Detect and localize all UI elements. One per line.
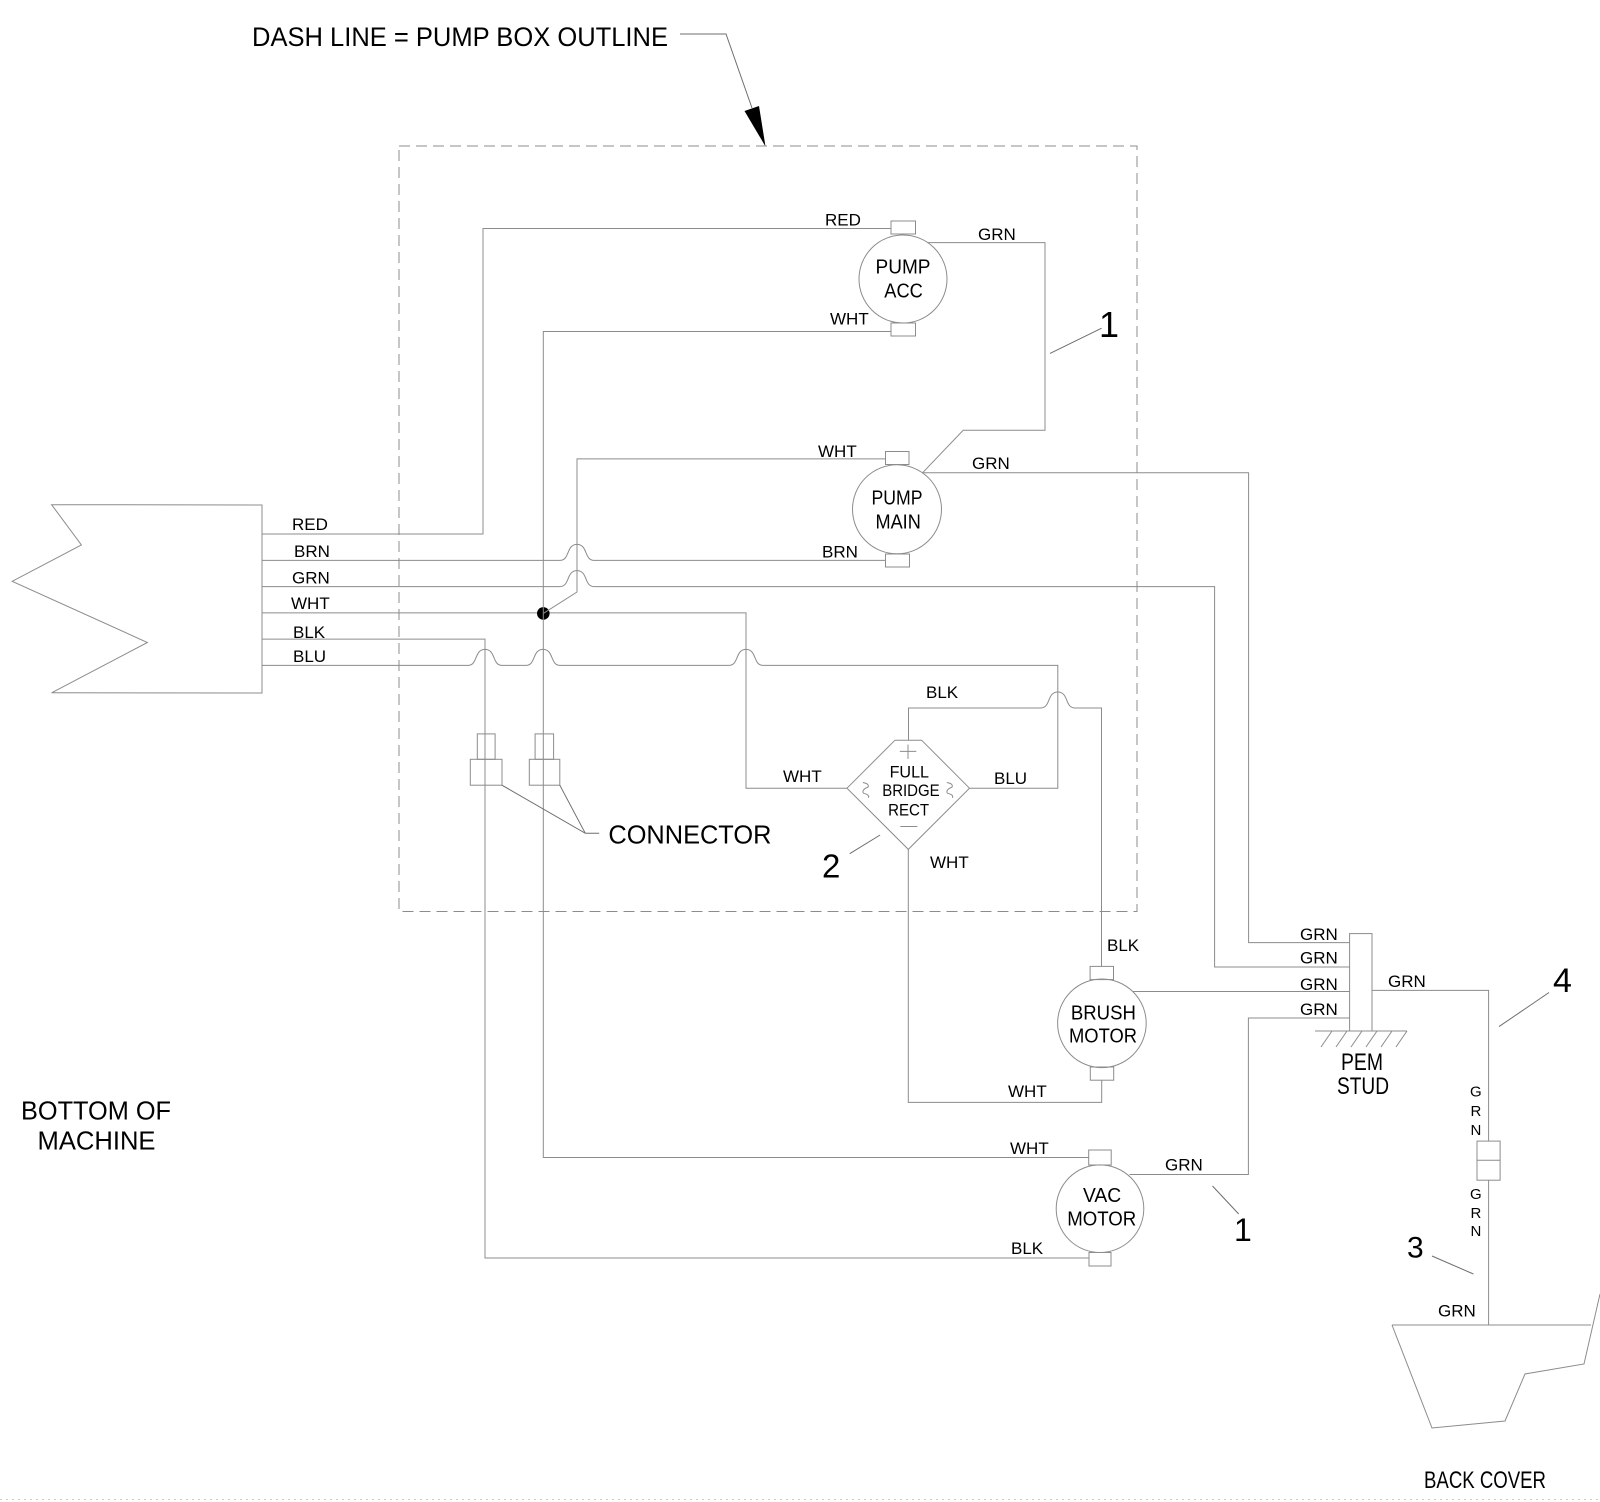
svg-text:BOTTOM OF: BOTTOM OF: [21, 1095, 171, 1125]
svg-text:WHT: WHT: [783, 767, 822, 786]
svg-text:MOTOR: MOTOR: [1069, 1026, 1137, 1048]
svg-text:BRUSH: BRUSH: [1071, 1003, 1136, 1025]
svg-text:DASH LINE = PUMP BOX OUTLINE: DASH LINE = PUMP BOX OUTLINE: [252, 22, 668, 52]
svg-text:GRN: GRN: [978, 225, 1016, 244]
svg-text:WHT: WHT: [830, 310, 869, 329]
svg-text:PUMP: PUMP: [876, 257, 931, 279]
svg-text:G: G: [1470, 1186, 1482, 1203]
svg-text:BLK: BLK: [1011, 1239, 1044, 1258]
svg-text:GRN: GRN: [1300, 1000, 1338, 1019]
svg-text:GRN: GRN: [1165, 1156, 1203, 1175]
svg-text:MOTOR: MOTOR: [1067, 1208, 1136, 1230]
svg-text:1: 1: [1099, 304, 1119, 345]
svg-text:BRN: BRN: [294, 542, 330, 561]
svg-text:BLK: BLK: [926, 683, 959, 702]
svg-text:GRN: GRN: [292, 569, 330, 588]
svg-text:PEM: PEM: [1341, 1049, 1383, 1076]
svg-text:GRN: GRN: [1388, 972, 1426, 991]
svg-text:MACHINE: MACHINE: [38, 1125, 156, 1155]
svg-text:PUMP: PUMP: [872, 488, 923, 510]
svg-text:2: 2: [822, 848, 840, 885]
svg-text:GRN: GRN: [1300, 949, 1338, 968]
svg-text:BLK: BLK: [1107, 936, 1140, 955]
svg-text:N: N: [1471, 1122, 1482, 1139]
svg-text:BRIDGE: BRIDGE: [882, 781, 940, 800]
svg-text:4: 4: [1553, 962, 1572, 1000]
svg-text:FULL: FULL: [890, 763, 929, 782]
svg-text:MAIN: MAIN: [876, 512, 921, 534]
svg-text:1: 1: [1234, 1212, 1252, 1248]
svg-text:WHT: WHT: [818, 442, 857, 461]
svg-text:ACC: ACC: [884, 281, 923, 303]
svg-text:WHT: WHT: [291, 594, 330, 613]
svg-text:GRN: GRN: [1438, 1302, 1476, 1321]
svg-text:GRN: GRN: [1300, 925, 1338, 944]
svg-text:RED: RED: [825, 211, 861, 230]
svg-text:BACK COVER: BACK COVER: [1424, 1467, 1546, 1494]
svg-text:GRN: GRN: [972, 454, 1010, 473]
svg-text:3: 3: [1407, 1232, 1424, 1265]
svg-text:CONNECTOR: CONNECTOR: [608, 820, 771, 850]
svg-text:R: R: [1471, 1103, 1482, 1120]
svg-text:RED: RED: [292, 515, 328, 534]
svg-text:R: R: [1471, 1205, 1482, 1222]
svg-text:G: G: [1470, 1083, 1482, 1100]
svg-text:BLK: BLK: [293, 623, 326, 642]
svg-text:N: N: [1471, 1223, 1482, 1240]
svg-text:WHT: WHT: [1008, 1082, 1047, 1101]
svg-text:GRN: GRN: [1300, 975, 1338, 994]
svg-text:STUD: STUD: [1337, 1073, 1389, 1100]
svg-text:BLU: BLU: [293, 647, 326, 666]
svg-text:WHT: WHT: [930, 853, 969, 872]
svg-text:BLU: BLU: [994, 769, 1027, 788]
svg-text:WHT: WHT: [1010, 1139, 1049, 1158]
svg-text:RECT: RECT: [888, 800, 929, 819]
svg-text:VAC: VAC: [1083, 1185, 1121, 1207]
svg-text:BRN: BRN: [822, 543, 858, 562]
